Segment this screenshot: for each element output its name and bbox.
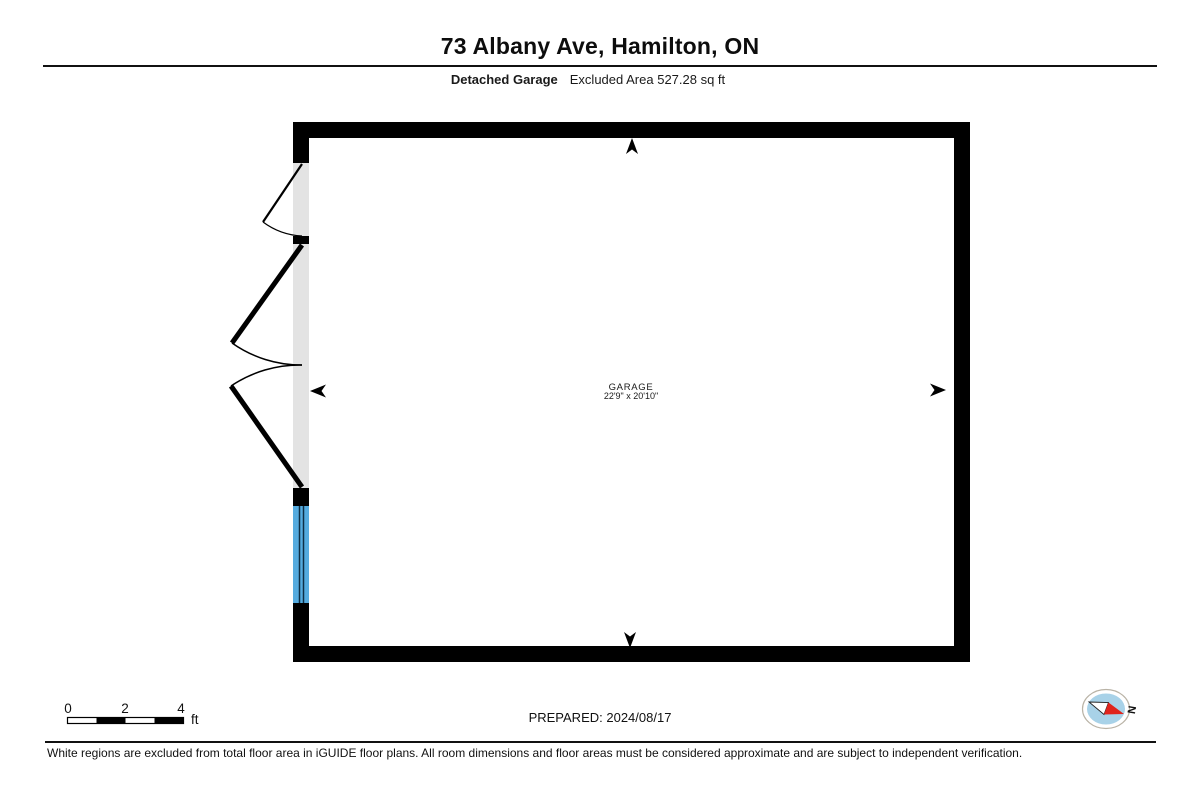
- room-dimensions: 22'9" x 20'10": [604, 391, 658, 401]
- room-label: GARAGE 22'9" x 20'10": [604, 382, 658, 401]
- window-glass: [293, 506, 309, 603]
- dimension-arrow-up: [626, 138, 638, 154]
- wall-left-stub-2: [293, 488, 309, 506]
- window: [293, 506, 309, 603]
- wall-right: [954, 122, 970, 662]
- wall-bottom: [293, 646, 970, 662]
- door-swing-arc-upper: [232, 343, 302, 365]
- footer-divider-line: [45, 741, 1156, 743]
- door-leaf-lower: [231, 386, 302, 487]
- wall-top: [293, 122, 970, 138]
- door-swing-arc-lower: [231, 365, 302, 386]
- prepared-date-label: PREPARED: 2024/08/17: [0, 710, 1200, 725]
- disclaimer-text: White regions are excluded from total fl…: [47, 746, 1167, 760]
- door-leaf-upper: [232, 245, 302, 343]
- wall-left-lower: [293, 603, 309, 662]
- door-double-swing: [231, 245, 302, 487]
- dimension-arrow-left: [310, 385, 326, 398]
- floorplan-drawing: GARAGE 22'9" x 20'10": [0, 0, 1200, 805]
- wall-left-stub-1: [293, 236, 309, 244]
- compass: N: [1075, 683, 1145, 738]
- dimension-arrow-down: [624, 632, 636, 648]
- dimension-arrow-right: [930, 384, 946, 397]
- wall-left-upper: [293, 122, 309, 163]
